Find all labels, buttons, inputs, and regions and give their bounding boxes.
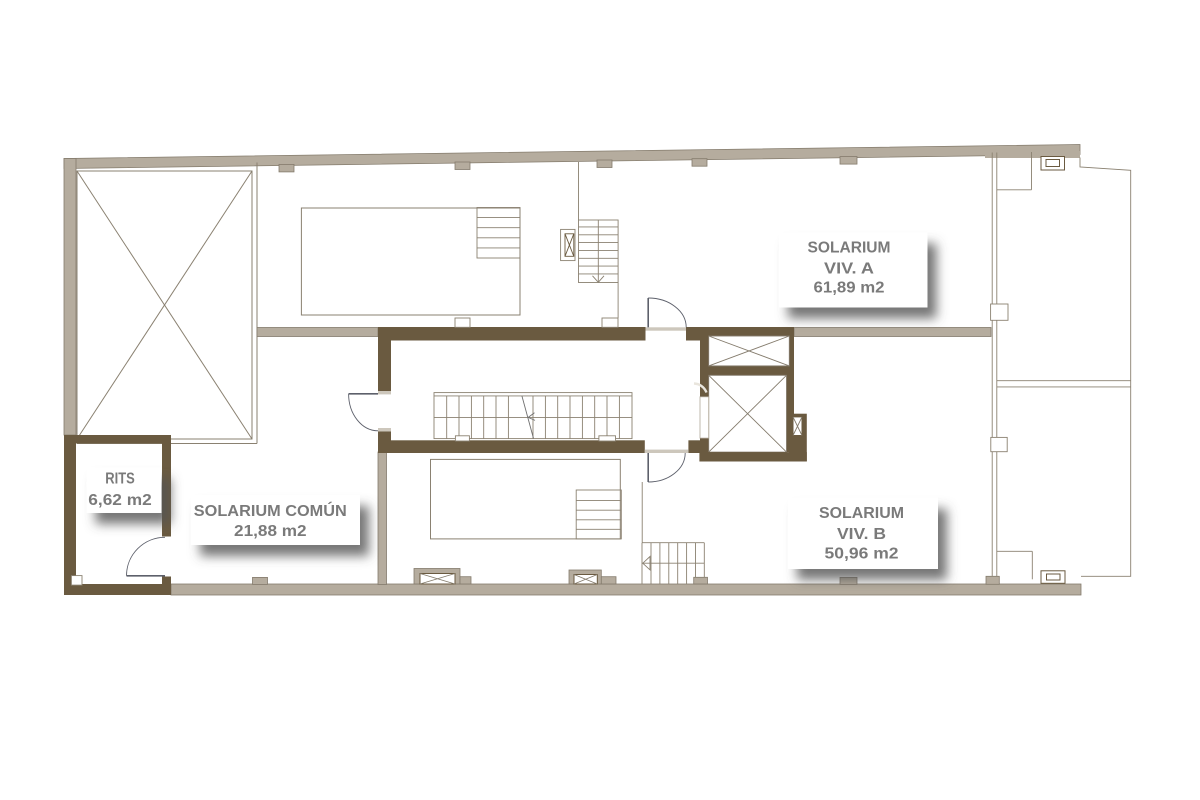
svg-text:61,89 m2: 61,89 m2: [814, 280, 885, 297]
svg-text:VIV. B: VIV. B: [837, 526, 886, 543]
svg-text:50,96 m2: 50,96 m2: [825, 546, 899, 563]
svg-text:RITS: RITS: [105, 471, 135, 488]
svg-text:SOLARIUM: SOLARIUM: [808, 239, 891, 256]
svg-text:SOLARIUM: SOLARIUM: [819, 505, 904, 522]
svg-text:6,62 m2: 6,62 m2: [88, 492, 152, 509]
svg-text:21,88 m2: 21,88 m2: [234, 523, 307, 540]
svg-text:SOLARIUM COMÚN: SOLARIUM COMÚN: [194, 501, 347, 520]
svg-text:VIV. A: VIV. A: [824, 260, 875, 277]
